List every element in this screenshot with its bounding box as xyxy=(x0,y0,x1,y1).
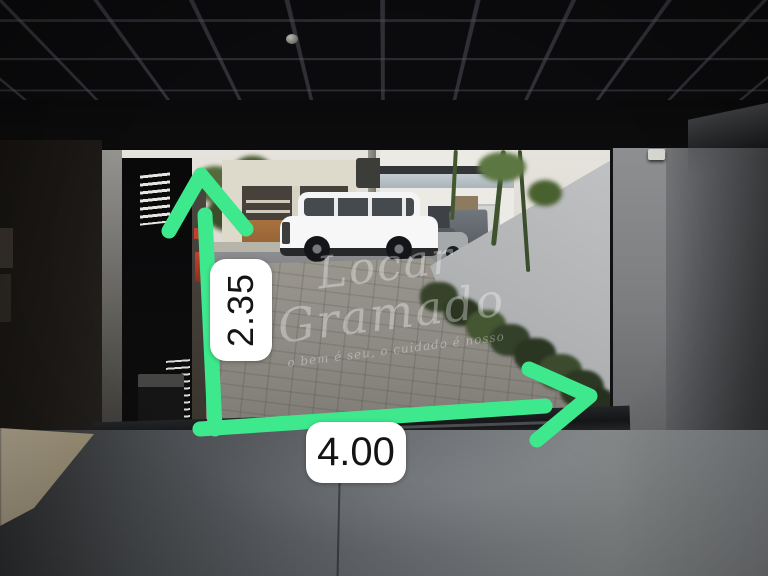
height-measurement-label: 2.35 xyxy=(210,259,272,361)
width-value: 4.00 xyxy=(317,430,395,475)
dimension-arrows xyxy=(0,0,768,576)
height-value: 2.35 xyxy=(220,273,262,347)
width-measurement-label: 4.00 xyxy=(306,422,406,483)
garage-entrance-photo: Locar Gramado o bem é seu, o cuidado é n… xyxy=(0,0,768,576)
